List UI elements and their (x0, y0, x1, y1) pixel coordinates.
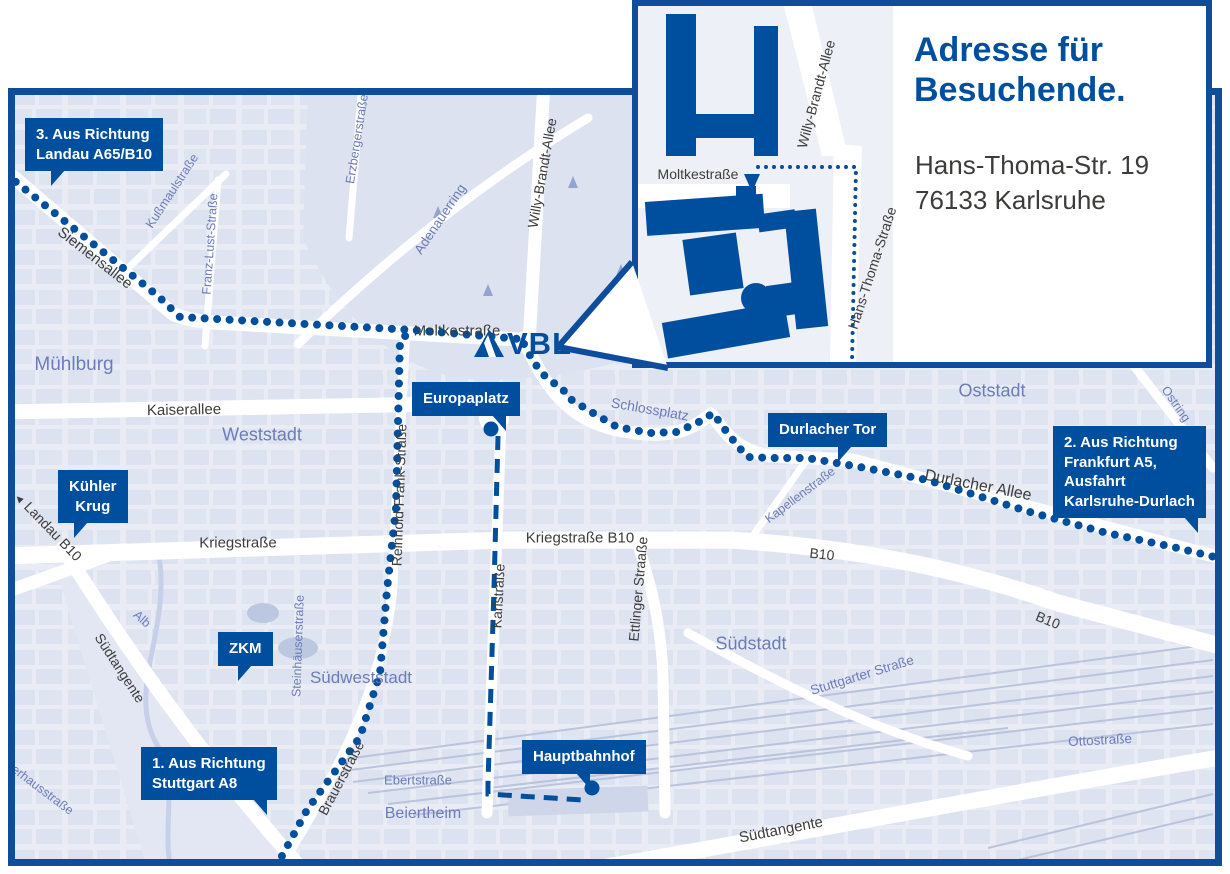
callout-europaplatz: Europaplatz (412, 382, 520, 416)
location-dot-europaplatz (484, 422, 499, 437)
vbl-logo-triangle-icon (474, 330, 504, 357)
callout-tail (838, 446, 852, 462)
callout-hauptbahnhof: Hauptbahnhof (522, 740, 646, 774)
callout-stuttgart: 1. Aus Richtung Stuttgart A8 (141, 747, 277, 800)
callout-tail (51, 170, 65, 186)
callout-durlacher-tor: Durlacher Tor (768, 413, 887, 447)
area-label-weststadt: Weststadt (222, 425, 302, 446)
area-label-beiertheim: Beiertheim (385, 805, 461, 823)
street-label-b10-west: B10 (809, 545, 835, 564)
location-dot-hauptbahnhof (585, 781, 600, 796)
callout-zkm: ZKM (218, 632, 273, 666)
area-label-muehlburg: Mühlburg (34, 354, 113, 376)
callout-tail (74, 522, 88, 538)
street-label-kaiserallee: Kaiserallee (147, 401, 222, 419)
page-root: Siemensallee Moltkestraße Kaiserallee Wi… (0, 0, 1230, 874)
street-label-kriegstrasse-b10: Kriegstraße B10 (526, 530, 634, 547)
callout-landau: 3. Aus Richtung Landau A65/B10 (25, 118, 163, 171)
area-label-oststadt: Oststadt (958, 381, 1025, 402)
callout-tail (1184, 517, 1198, 533)
inset-street-label-moltkestrasse: Moltkestraße (658, 166, 739, 182)
callout-frankfurt: 2. Aus Richtung Frankfurt A5, Ausfahrt K… (1053, 426, 1206, 518)
callout-kuehler-krug: Kühler Krug (58, 470, 128, 523)
inset-title: Adresse für Besuchende. (914, 30, 1126, 110)
vbl-logo-text: VBL (507, 328, 572, 359)
street-label-kriegstrasse: Kriegstraße (199, 535, 277, 552)
callout-tail (238, 665, 252, 681)
area-label-suedstadt: Südstadt (715, 634, 786, 655)
street-label-karlstrasse: Karlstraße (488, 563, 507, 628)
callout-tail (253, 799, 267, 815)
inset-panel: Moltkestraße Willy-Brandt-Allee Hans-Tho… (632, 0, 1212, 368)
street-label-ebertstrasse: Ebertstraße (384, 773, 452, 788)
vbl-logo: VBL (474, 328, 572, 359)
area-label-suedweststadt: Südweststadt (310, 668, 412, 688)
inset-address: Hans-Thoma-Str. 19 76133 Karlsruhe (915, 148, 1149, 218)
